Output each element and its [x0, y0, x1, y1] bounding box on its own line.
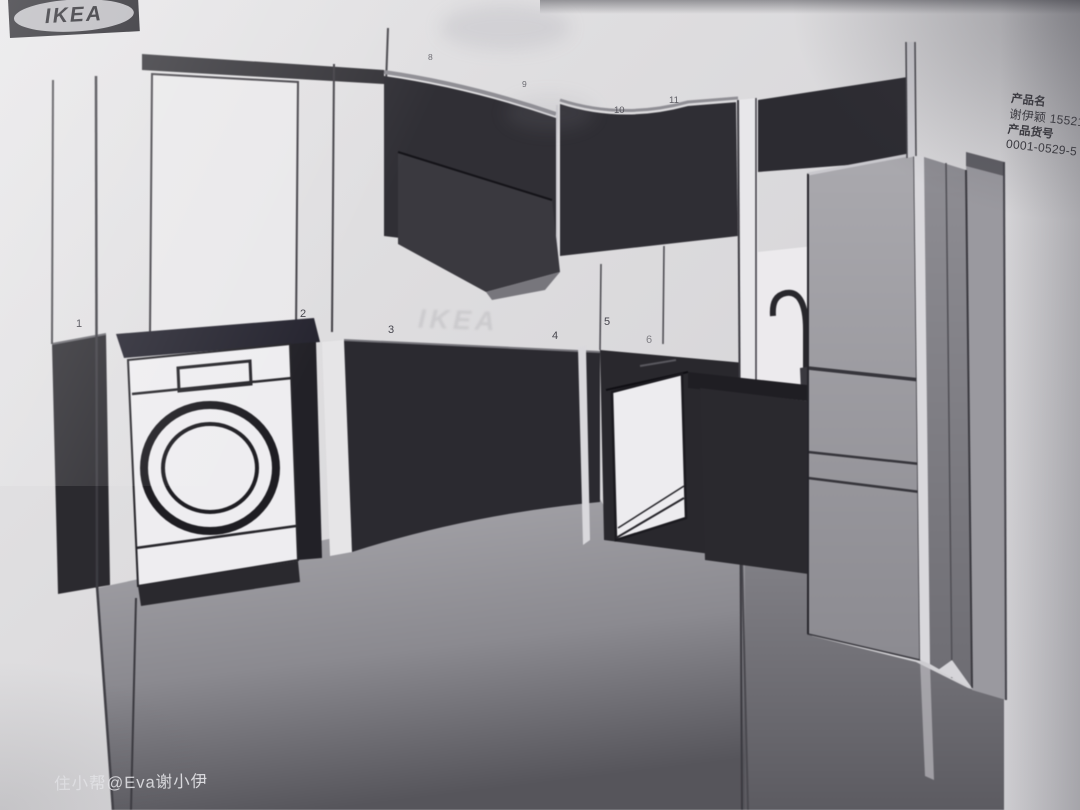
- bleed-through-ikea-text: IKEA: [417, 304, 499, 338]
- ikea-logo-text: IKEA: [44, 2, 103, 29]
- callout-11: 11: [669, 95, 679, 106]
- callout-1: 1: [76, 318, 82, 330]
- callout-10: 10: [614, 105, 625, 116]
- callout-2: 2: [300, 308, 306, 320]
- washing-machine: [116, 318, 322, 606]
- callout-9: 9: [522, 79, 527, 89]
- watermark-text: 住小帮@Eva谢小伊: [54, 768, 209, 795]
- dishwasher-opening: [612, 374, 686, 540]
- printed-rendering-layer: IKEA 1 2 3 4 5 6 8 9 10 11 IKEA 产品名 谢伊颖 …: [0, 0, 1080, 810]
- callout-4: 4: [552, 330, 558, 342]
- left-base-cabinet: [52, 334, 110, 594]
- bleed-through-smudge: [505, 95, 595, 131]
- callout-3: 3: [388, 324, 394, 336]
- photo-of-printed-kitchen-plan: { "document": { "brand": "IKEA", "produc…: [0, 0, 1080, 810]
- callout-8: 8: [428, 52, 433, 62]
- bleed-through-smudge: [440, 5, 570, 50]
- callout-5: 5: [604, 316, 610, 328]
- callout-6: 6: [646, 334, 652, 346]
